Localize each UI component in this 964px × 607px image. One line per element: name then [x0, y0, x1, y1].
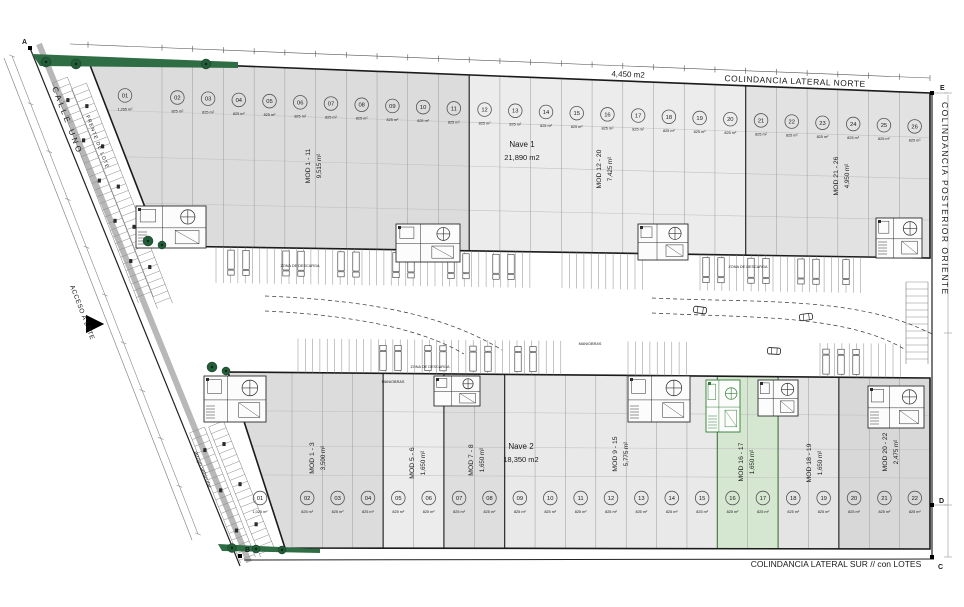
car-icon [799, 313, 813, 321]
module-number: 02 [174, 96, 180, 102]
module-number: 01 [122, 93, 128, 99]
module-group-area: 1,650 m² [479, 448, 486, 472]
module-area: 825 m² [602, 126, 615, 130]
module-area: 825 m² [909, 510, 922, 514]
module-number: 07 [456, 496, 462, 502]
module-number: 10 [547, 496, 553, 502]
module-number: 10 [420, 105, 426, 111]
module-area: 825 m² [332, 510, 345, 514]
module-number: 04 [365, 496, 372, 502]
module-area: 825 m² [202, 111, 215, 115]
corner-point-label: B [245, 547, 250, 554]
module-group-area: 3,500 m² [320, 446, 327, 470]
module-group-label: MOD 12 - 20 [596, 149, 603, 188]
site-plan-drawing: 011,265 m²02825 m²03825 m²04825 m²05825 … [0, 0, 964, 607]
nave2-area: 18,350 m2 [503, 455, 538, 464]
maniobras-label: MANIOBRAS [579, 342, 602, 346]
green-module-office-block [706, 380, 740, 432]
corner-point-marker [238, 554, 242, 558]
module-area: 825 m² [879, 510, 892, 514]
site-plan-page: 011,265 m²02825 m²03825 m²04825 m²05825 … [0, 0, 964, 607]
module-group-area: 4,950 m² [844, 164, 851, 188]
corner-point-marker [930, 555, 934, 559]
corner-point-marker [28, 46, 32, 50]
module-area: 825 m² [817, 135, 830, 139]
module-area: 825 m² [666, 510, 679, 514]
module-area: 825 m² [417, 119, 430, 123]
nave1-area: 21,890 m2 [504, 153, 539, 162]
loading-docks-layer [216, 247, 932, 378]
module-group-area: 2,475 m² [893, 440, 900, 464]
module-area: 825 m² [325, 116, 338, 120]
maniobras-label: MANIOBRAS [382, 380, 405, 384]
module-area: 825 m² [635, 510, 648, 514]
module-area: 825 m² [694, 130, 707, 134]
module-number: 08 [486, 496, 492, 502]
module-number: 20 [727, 117, 733, 123]
module-number: 16 [729, 496, 735, 502]
module-area: 825 m² [453, 510, 466, 514]
module-area: 825 m² [909, 138, 922, 142]
car-icon [767, 347, 780, 354]
acceso-a-lote-label: ACCESO A LOTE [68, 284, 95, 341]
corner-point-marker [930, 503, 934, 507]
module-area: 825 m² [757, 510, 770, 514]
module-number: 01 [257, 496, 263, 502]
office-block [758, 380, 798, 416]
module-area: 825 m² [818, 510, 831, 514]
corner-point-label: A [22, 39, 27, 46]
module-area: 825 m² [605, 510, 618, 514]
module-number: 24 [850, 122, 857, 128]
module-area: 825 m² [571, 125, 584, 129]
module-area: 825 m² [540, 124, 553, 128]
module-number: 03 [334, 496, 340, 502]
module-number: 09 [389, 104, 395, 110]
module-number: 14 [543, 110, 550, 116]
module-area: 825 m² [847, 136, 860, 140]
top-area-label: 4,450 m2 [611, 69, 645, 79]
office-block [434, 376, 480, 406]
module-area: 825 m² [479, 122, 492, 126]
module-number: 11 [578, 496, 584, 502]
car-icon [693, 306, 707, 314]
module-group-label: MOD 7 - 8 [468, 444, 475, 476]
module-area: 825 m² [544, 510, 557, 514]
module-area: 825 m² [356, 117, 369, 121]
office-block [638, 224, 688, 260]
nave1-title: Nave 1 [509, 140, 535, 149]
module-area: 825 m² [878, 137, 891, 141]
module-number: 21 [758, 118, 764, 124]
module-group-label: MOD 5 - 6 [409, 447, 416, 479]
module-area: 825 m² [727, 510, 740, 514]
module-area: 825 m² [696, 510, 709, 514]
office-block [628, 376, 690, 422]
module-number: 18 [790, 496, 796, 502]
module-number: 03 [205, 97, 211, 103]
module-area: 825 m² [632, 128, 645, 132]
module-number: 06 [297, 100, 303, 106]
zona-descarga-label: ZONA DE DESCARGA [280, 264, 319, 268]
module-number: 02 [304, 496, 310, 502]
module-group-area: 5,775 m² [623, 442, 630, 466]
module-number: 18 [666, 115, 672, 121]
module-area: 825 m² [171, 110, 184, 114]
module-area: 825 m² [786, 134, 799, 138]
module-area: 825 m² [392, 510, 405, 514]
module-area: 825 m² [509, 123, 522, 127]
module-area: 825 m² [484, 510, 497, 514]
module-number: 20 [851, 496, 857, 502]
module-number: 16 [604, 112, 610, 118]
module-number: 13 [512, 109, 518, 115]
module-group-area: 1,650 m² [817, 451, 824, 475]
module-area: 1,265 m² [118, 107, 134, 111]
module-number: 11 [451, 106, 457, 112]
zona-descarga-label: ZONA DE DESCARGA [410, 365, 449, 369]
module-area: 825 m² [787, 510, 800, 514]
corner-point-label: C [938, 564, 943, 571]
module-number: 12 [481, 108, 487, 114]
boundary-south-label: COLINDANCIA LATERAL SUR // con LOTES [751, 559, 922, 569]
module-area: 825 m² [233, 112, 246, 116]
module-area: 825 m² [575, 510, 588, 514]
module-number: 21 [881, 496, 887, 502]
module-number: 06 [425, 496, 431, 502]
module-group-area: 7,425 m² [607, 157, 614, 181]
corner-point-label: E [940, 85, 945, 92]
module-area: 825 m² [663, 129, 676, 133]
module-area: 825 m² [724, 131, 737, 135]
module-group-area: 1,650 m² [420, 451, 427, 475]
module-number: 14 [669, 496, 676, 502]
module-group-area: 9,515 m² [316, 154, 323, 178]
module-area: 825 m² [423, 510, 436, 514]
module-group-label: MOD 20 - 22 [882, 432, 889, 471]
module-area: 825 m² [362, 510, 375, 514]
boundary-east-label: COLINDANCIA POSTERIOR ORIENTE [940, 102, 950, 296]
office-block [876, 218, 922, 258]
module-group-label: MOD 9 - 15 [612, 436, 619, 471]
module-number: 05 [266, 99, 272, 105]
office-block [868, 386, 924, 428]
module-area: 825 m² [514, 510, 527, 514]
corner-point-marker [930, 91, 934, 95]
module-group-label: MOD 1 - 3 [309, 442, 316, 474]
module-group-label: MOD 16 - 17 [738, 442, 745, 481]
module-area: 825 m² [294, 114, 307, 118]
zona-descarga-label: ZONA DE DESCARGA [728, 265, 767, 269]
module-number: 19 [696, 116, 702, 122]
module-group-label: MOD 21 - 26 [833, 156, 840, 195]
module-number: 08 [358, 103, 364, 109]
module-number: 26 [911, 124, 917, 130]
module-number: 05 [395, 496, 401, 502]
module-area: 1,025 m² [253, 510, 269, 514]
module-area: 825 m² [386, 118, 399, 122]
module-number: 15 [699, 496, 705, 502]
corner-point-label: D [939, 498, 944, 505]
module-area: 825 m² [264, 113, 277, 117]
module-group-label: MOD 18 - 19 [806, 443, 813, 482]
module-area: 825 m² [448, 120, 461, 124]
module-number: 04 [236, 98, 243, 104]
module-number: 23 [819, 121, 825, 127]
module-number: 15 [573, 111, 579, 117]
module-group-area: 1,650 m² [749, 450, 756, 474]
office-block [204, 376, 266, 422]
module-number: 09 [517, 496, 523, 502]
module-area: 825 m² [301, 510, 314, 514]
module-area: 825 m² [848, 510, 861, 514]
module-number: 17 [760, 496, 766, 502]
module-number: 17 [635, 114, 641, 120]
module-number: 07 [328, 102, 334, 108]
module-number: 22 [789, 120, 795, 126]
module-number: 19 [820, 496, 826, 502]
module-area: 825 m² [755, 132, 768, 136]
office-block [396, 224, 460, 262]
street-label-calle-uno: CALLE UNO [50, 85, 84, 156]
module-number: 13 [638, 496, 644, 502]
module-number: 22 [912, 496, 918, 502]
module-group-label: MOD 1 - 11 [305, 148, 312, 183]
module-number: 12 [608, 496, 614, 502]
nave2-title: Nave 2 [508, 442, 534, 451]
module-number: 25 [881, 123, 887, 129]
